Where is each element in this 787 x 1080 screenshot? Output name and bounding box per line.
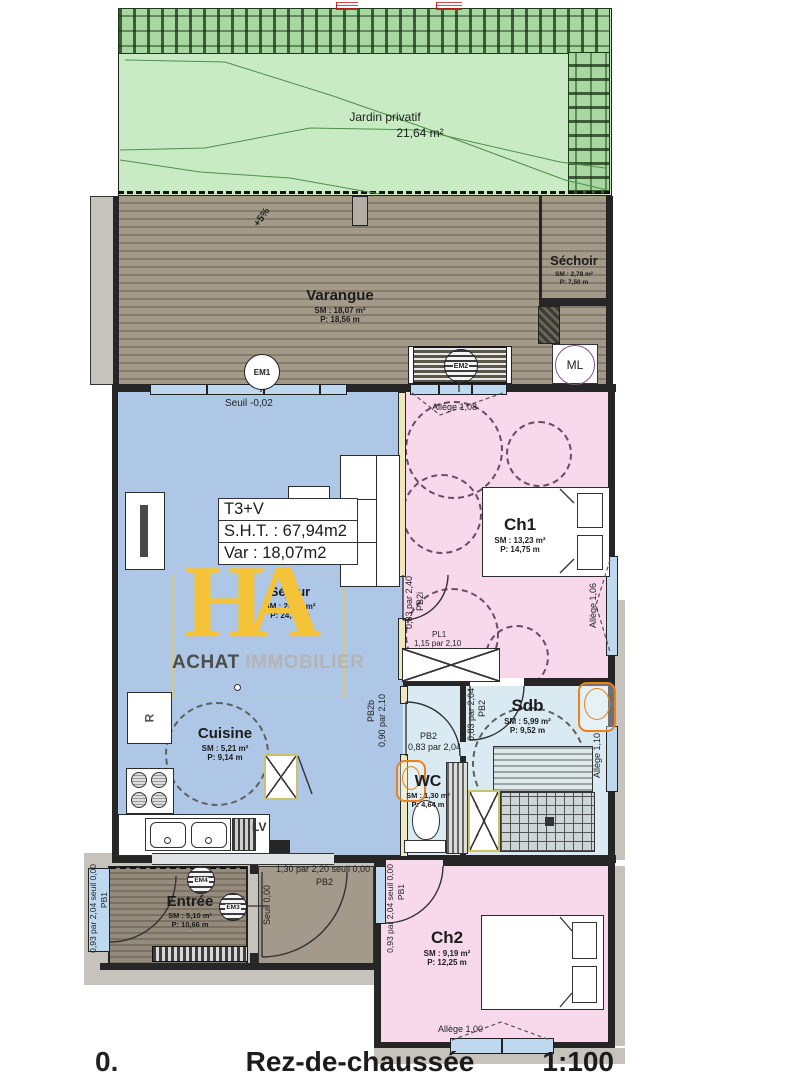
- agency-logo: H A ACHAT IMMOBILIER: [180, 556, 352, 678]
- summary-type: T3+V: [219, 499, 357, 521]
- door-ch2-code: PB1: [396, 884, 406, 900]
- garden-area-text: 21,64 m²: [396, 126, 443, 140]
- door-ch1-dim: 0,83 par 2,40: [404, 576, 414, 629]
- survey-mark: [436, 2, 462, 10]
- door-porch-dim: 0,93 par 2,04 seuil 0,00: [88, 864, 98, 953]
- door-ch2-dim: 0,93 par 2,04 seuil 0,00: [385, 864, 395, 953]
- door-wc-dim: 0,83 par 2,04: [408, 742, 461, 752]
- room-name: Ch2: [431, 928, 463, 947]
- room-label-sechoir: Séchoir SM : 2,78 m² P: 7,50 m: [541, 252, 607, 286]
- seuil-sejour: Seuil -0,02: [225, 398, 273, 409]
- room-p: P: 7,50 m: [541, 279, 607, 287]
- door-sdb-dim: 0,83 par 2,04: [466, 688, 476, 741]
- room-name: Cuisine: [198, 725, 252, 742]
- footer-floor-name: Rez-de-chaussée: [220, 1046, 500, 1078]
- room-sm: SM : 5,21 m²: [165, 744, 285, 753]
- room-name: Entrée: [167, 893, 214, 910]
- allege-sdb: Allège 1,10: [592, 733, 602, 778]
- door-entree-dim: 1,30 par 2,20 seuil 0,00: [276, 864, 370, 874]
- garden-area-value: 21,64 m²: [375, 126, 465, 140]
- allege-ch2: Allège 1,00: [438, 1024, 483, 1034]
- garden-label: Jardin privatif: [320, 110, 450, 124]
- room-sm: SM : 5,99 m²: [480, 717, 575, 726]
- door-sdb-code: PB2: [477, 700, 487, 717]
- garden-name: Jardin privatif: [349, 110, 420, 124]
- em2-label: EM2: [453, 363, 469, 370]
- floor-name-text: Rez-de-chaussée: [246, 1046, 475, 1077]
- room-label-ch2: Ch2 SM : 9,19 m² P: 12,25 m: [392, 928, 502, 968]
- summary-box: T3+V S.H.T. : 67,94m2 Var : 18,07m2: [218, 498, 358, 565]
- seuil-entree: Seuil 0,00: [262, 885, 272, 925]
- room-label-cuisine: Cuisine SM : 5,21 m² P: 9,14 m: [165, 725, 285, 763]
- room-p: P: 9,52 m: [480, 726, 575, 735]
- room-sm: SM : 18,07 m²: [270, 306, 410, 315]
- door-porch-code: PB1: [99, 892, 109, 908]
- door-kitchen-dim: 0,90 par 2,10: [377, 694, 387, 747]
- room-label-varangue: Varangue SM : 18,07 m² P: 18,56 m: [270, 287, 410, 325]
- logo-brand: ACHAT IMMOBILIER: [172, 652, 360, 674]
- survey-mark: [336, 2, 358, 10]
- room-name: Ch1: [504, 515, 536, 534]
- dishwasher-label: LV: [252, 820, 266, 834]
- footer-scale: 1:100: [538, 1046, 614, 1078]
- em2-device: EM2: [444, 349, 478, 383]
- em4-device: EM4: [187, 866, 215, 894]
- room-p: P: 18,56 m: [270, 315, 410, 324]
- room-name: WC: [415, 773, 442, 790]
- floor-plan: Jardin privatif 21,64 m² Varangue SM : 1…: [0, 0, 787, 1080]
- door-kitchen-code: PB2b: [366, 700, 376, 722]
- logo-brand-immobilier: IMMOBILIER: [245, 652, 364, 673]
- allege-ch1-top: Allège 1,08: [432, 402, 477, 412]
- room-label-entree: Entrée SM : 5,10 m² P: 10,66 m: [135, 893, 245, 930]
- room-label-wc: WC SM : 1,30 m² P: 4,64 m: [396, 773, 460, 810]
- scale-text: 1:100: [542, 1046, 614, 1077]
- summary-sht: S.H.T. : 67,94m2: [219, 521, 357, 543]
- em1-device: EM1: [244, 354, 280, 390]
- room-name: Sdb: [511, 696, 543, 715]
- em1-label: EM1: [254, 368, 270, 377]
- room-label-ch1: Ch1 SM : 13,23 m² P: 14,75 m: [465, 515, 575, 555]
- room-sm: SM : 13,23 m²: [465, 536, 575, 545]
- room-sm: SM : 2,78 m²: [541, 271, 607, 279]
- room-label-sdb: Sdb SM : 5,99 m² P: 9,52 m: [480, 696, 575, 736]
- room-sm: SM : 9,19 m²: [392, 949, 502, 958]
- summary-var: Var : 18,07m2: [219, 543, 357, 564]
- allege-ch1-right: Allège 1,06: [588, 583, 598, 628]
- closet-dim: 1,15 par 2,10: [414, 639, 461, 648]
- door-ch1-code: PB2i: [415, 592, 425, 611]
- room-p: P: 10,66 m: [135, 921, 245, 930]
- closet-code: PL1: [432, 630, 446, 639]
- logo-brand-achat: ACHAT: [172, 652, 240, 673]
- room-name: Séchoir: [550, 253, 598, 268]
- room-p: P: 12,25 m: [392, 958, 502, 967]
- em4-label: EM4: [193, 877, 208, 884]
- room-name: Varangue: [306, 287, 374, 304]
- room-p: P: 4,64 m: [396, 801, 460, 810]
- room-p: P: 14,75 m: [465, 545, 575, 554]
- room-p: P: 9,14 m: [165, 753, 285, 762]
- door-entree-code: PB2: [316, 877, 333, 887]
- footer-floor-index: 0.: [95, 1046, 118, 1078]
- door-wc-code: PB2: [420, 731, 437, 741]
